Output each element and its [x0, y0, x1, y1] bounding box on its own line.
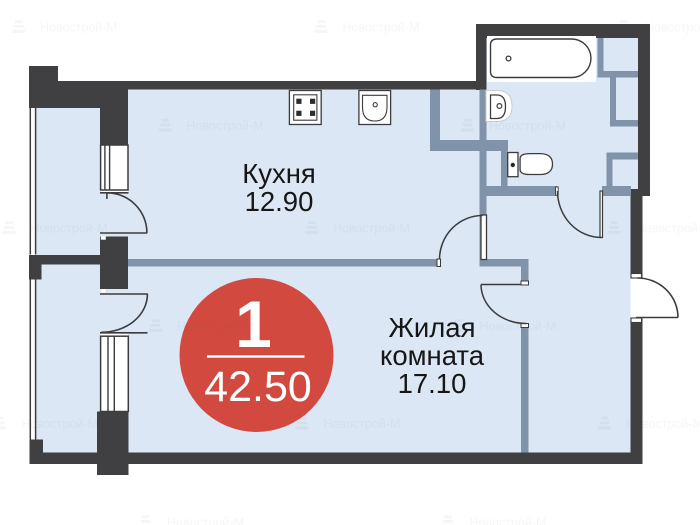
svg-text:Кухня: Кухня	[242, 158, 316, 189]
svg-text:42.50: 42.50	[204, 363, 312, 411]
svg-text:12.90: 12.90	[245, 186, 314, 217]
svg-text:Жилая: Жилая	[389, 312, 476, 343]
svg-text:Новострой-М: Новострой-М	[40, 21, 117, 35]
svg-text:17.10: 17.10	[398, 368, 467, 399]
svg-text:комната: комната	[380, 340, 485, 371]
